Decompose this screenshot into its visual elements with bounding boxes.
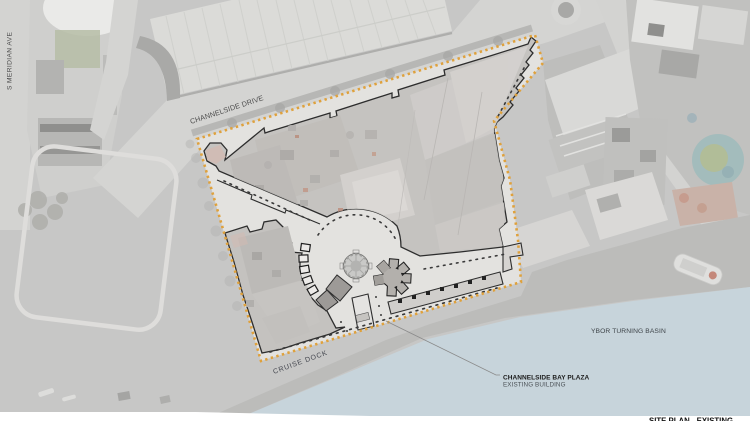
svg-text:YBOR TURNING BASIN: YBOR TURNING BASIN [591, 328, 666, 335]
svg-text:S MERIDIAN AVE: S MERIDIAN AVE [7, 32, 14, 90]
svg-text:EXISTING BUILDING: EXISTING BUILDING [503, 382, 566, 389]
svg-text:CHANNELSIDE BAY PLAZA: CHANNELSIDE BAY PLAZA [503, 375, 590, 382]
svg-text:SITE PLAN - EXISTING: SITE PLAN - EXISTING [649, 417, 733, 421]
